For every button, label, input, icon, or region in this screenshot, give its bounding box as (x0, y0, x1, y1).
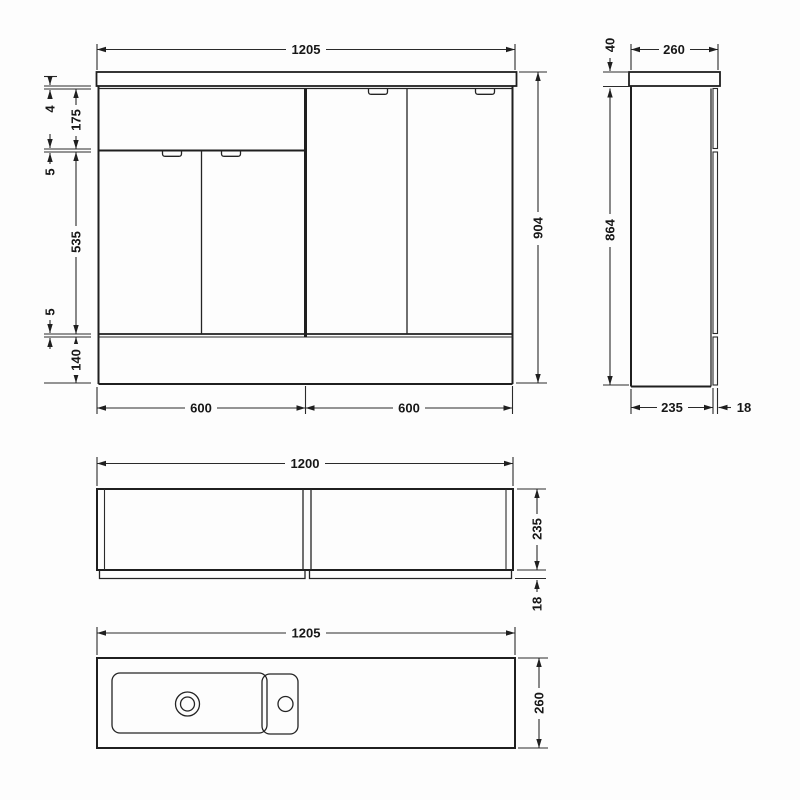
dim-label-side-door: 18 (737, 400, 751, 415)
dim-label-front-width: 1205 (292, 42, 321, 57)
dim-side-height: 864 (603, 89, 630, 386)
dim-label-plan-depth: 235 (530, 518, 545, 540)
door-handle-icon (369, 89, 388, 95)
dim-plan-width: 1200 (97, 456, 513, 486)
side-view: 40 864 260 235 18 (603, 38, 752, 415)
dim-label-front-gap-top: 4 (43, 105, 58, 113)
dim-label-side-width: 260 (663, 42, 685, 57)
vanity-unit-drawing: 1205 904 4 5 5 (0, 0, 800, 800)
dim-label-plan-door: 18 (530, 597, 545, 611)
dim-label-basin-depth: 260 (532, 692, 547, 714)
dim-label-plan-width: 1200 (291, 456, 320, 471)
dim-plan-door: 18 (515, 579, 546, 612)
dim-label-front-gap-low: 5 (43, 308, 58, 315)
plan-internal-walls (105, 489, 507, 570)
dim-side-depth: 235 18 (631, 388, 751, 415)
dim-label-front-left-600: 600 (190, 401, 212, 416)
dim-label-door-height: 535 (69, 231, 84, 253)
front-view: 1205 904 4 5 5 (43, 42, 548, 416)
dim-label-side-depth: 235 (661, 400, 683, 415)
basin-waste-drain (176, 692, 200, 716)
dim-label-front-height: 904 (531, 216, 546, 238)
plan-door-fronts (100, 570, 512, 579)
dim-label-side-countertop: 40 (603, 38, 618, 52)
dim-side-width: 260 (631, 42, 718, 70)
door-handle-icon (476, 89, 495, 95)
dim-front-left-stack: 4 5 5 175 535 140 (43, 77, 92, 384)
dim-front-bottom-widths: 600 600 (97, 386, 513, 416)
dim-basin-width: 1205 (97, 626, 515, 656)
side-countertop (629, 72, 720, 86)
basin-bowl (112, 673, 267, 733)
side-door-edge (713, 89, 718, 386)
dim-label-side-height: 864 (603, 218, 618, 240)
dim-label-basin-width: 1205 (292, 626, 321, 641)
dim-front-width: 1205 (97, 42, 515, 70)
plan-view: 1200 235 18 (97, 456, 546, 611)
dim-label-plinth-height: 140 (69, 349, 84, 371)
tap-hole (278, 697, 293, 712)
countertop-outline (97, 658, 515, 748)
plan-outline (97, 489, 513, 570)
door-handles (163, 89, 495, 157)
side-cabinet-outline (631, 86, 711, 387)
basin-plan-view: 1205 260 (97, 626, 548, 749)
dim-plan-depth: 235 (517, 489, 546, 570)
technical-drawing-page: 1205 904 4 5 5 (0, 0, 800, 800)
front-countertop (97, 72, 517, 86)
dim-label-front-right-600: 600 (398, 401, 420, 416)
dim-front-height: 904 (516, 72, 547, 383)
dim-side-countertop: 40 (603, 38, 630, 87)
dim-basin-depth: 260 (518, 658, 548, 748)
dim-label-front-gap-mid: 5 (43, 168, 58, 175)
dim-label-drawer-height: 175 (69, 109, 84, 131)
